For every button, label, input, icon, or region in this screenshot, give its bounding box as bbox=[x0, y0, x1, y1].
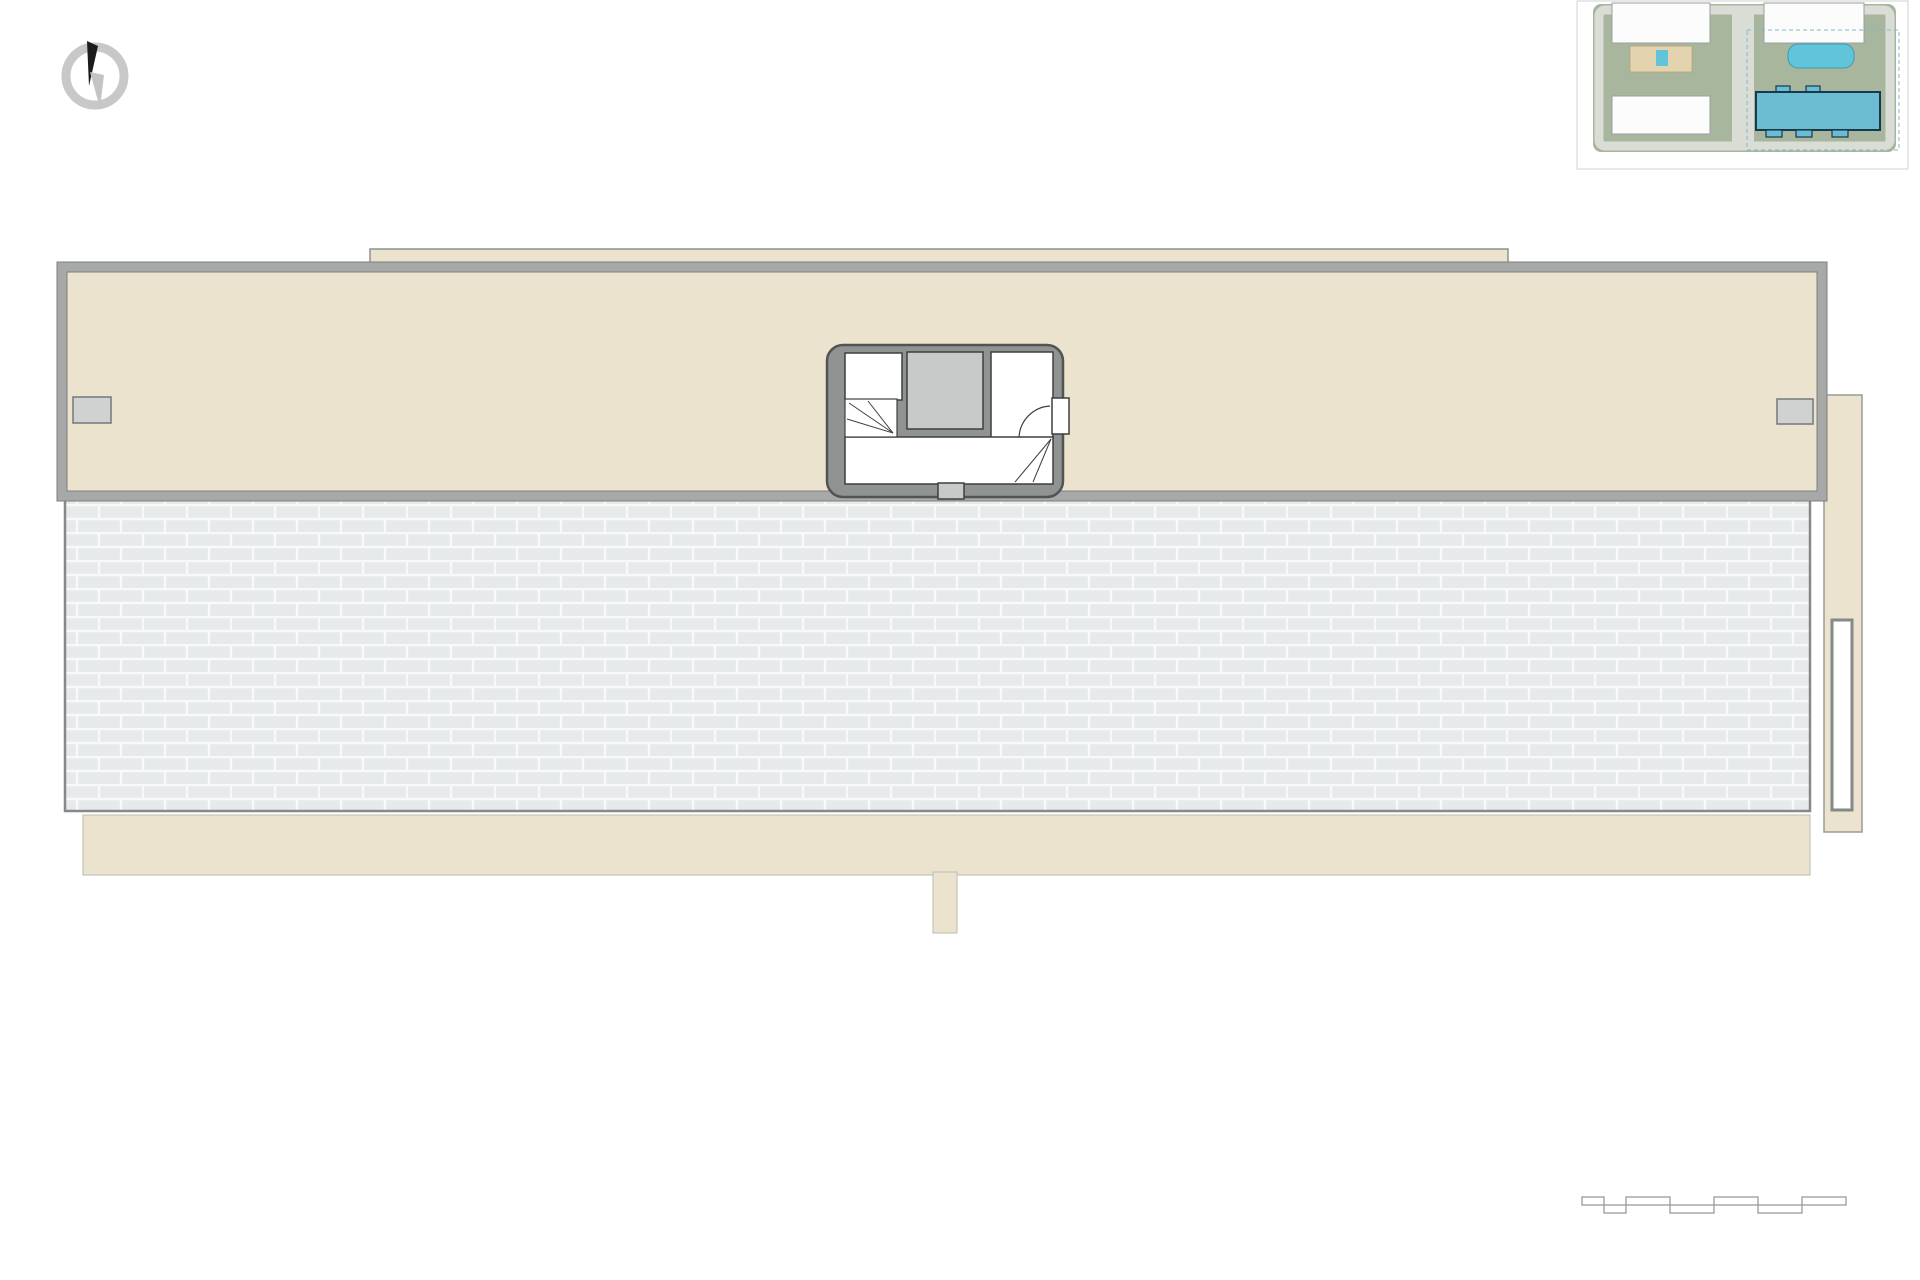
stair-core bbox=[827, 345, 1069, 499]
core-side-stub bbox=[1052, 398, 1069, 434]
right-wall-tab bbox=[1777, 399, 1813, 424]
scale-bar bbox=[1582, 1197, 1846, 1213]
site-building-top-right bbox=[1764, 3, 1864, 43]
right-annex-stair bbox=[1832, 620, 1852, 810]
terrace-band bbox=[65, 494, 1810, 811]
core-bottom-stub bbox=[938, 483, 964, 499]
planter-band bbox=[83, 815, 1810, 875]
site-plan-thumbnail bbox=[1577, 1, 1908, 169]
compass bbox=[66, 41, 124, 108]
core-room-left bbox=[845, 353, 902, 400]
site-small-pool bbox=[1656, 50, 1668, 66]
planter-band-stub bbox=[933, 872, 957, 933]
floor-plan-page: const data = JSON.parse(document.getElem… bbox=[0, 0, 1920, 1280]
site-bloque1-highlight bbox=[1756, 92, 1880, 130]
floor-plan-drawing bbox=[0, 0, 1920, 1280]
elevator-shaft bbox=[907, 352, 983, 429]
site-building-bottom-left bbox=[1612, 96, 1710, 134]
site-main-pool bbox=[1788, 44, 1854, 68]
left-wall-tab bbox=[73, 397, 111, 423]
core-stair-run bbox=[845, 437, 1053, 484]
site-building-top-left bbox=[1612, 3, 1710, 43]
site-central-road bbox=[1732, 6, 1754, 148]
